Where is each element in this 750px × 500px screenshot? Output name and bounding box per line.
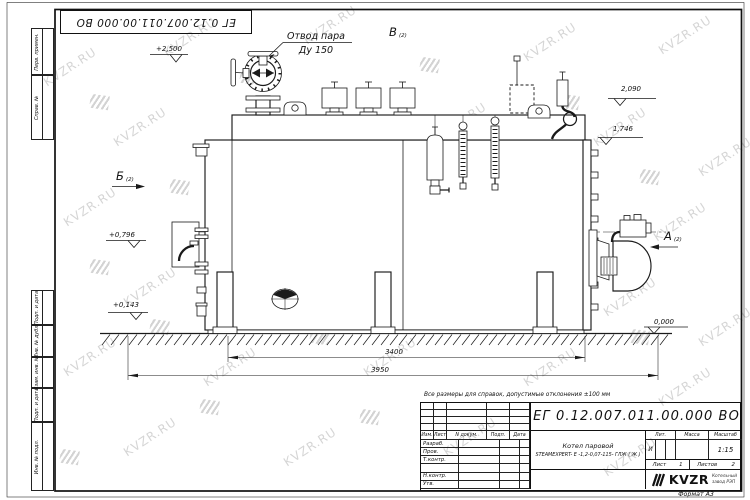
steam-callout-line2: Ду 150 (298, 45, 333, 56)
signature-rows: Разраб.Пров.Т.контр.Н.контр.Утв. (421, 440, 530, 489)
sheets-total: 2 (731, 462, 734, 468)
ground-line (100, 334, 672, 346)
sheets-label: Листов (697, 462, 717, 468)
svg-text:0,000: 0,000 (654, 318, 675, 326)
sheet-row: Лист 1 Листов 2 (646, 459, 742, 469)
level-2500: +2,500 (150, 45, 188, 62)
drawing-sheet: KVZR.RUKVZR.RUKVZR.RUKVZR.RUKVZR.RUKVZR.… (0, 0, 750, 500)
boiler-shell (205, 140, 587, 334)
level-0796: +0,796 (106, 231, 146, 248)
product-name: Котел паровой (563, 442, 614, 450)
margin-box-podp-data-2: Подп. и дата (31, 388, 54, 422)
margin-box-inv-podl: Инв. № подл. (31, 422, 54, 491)
margin-box-podp-data-1: Подп. и дата (31, 290, 54, 325)
svg-text:+2,500: +2,500 (156, 45, 182, 53)
title-block: ЕГ 0.12.007.011.00.000 ВО Изм.ЛистN доку… (420, 402, 741, 491)
kvzr-logo-icon (651, 473, 666, 487)
steam-callout-line1: Отвод пара (287, 31, 345, 42)
scale-value: 1:15 (709, 440, 742, 459)
steam-outlet-callout: Отвод пара Ду 150 (269, 31, 352, 58)
svg-text:+0,143: +0,143 (113, 301, 139, 309)
sheet-no: 1 (679, 462, 682, 468)
view-marker-left: Б (2) (112, 169, 145, 189)
steam-valve (231, 52, 282, 116)
level-0000: 0,000 (644, 318, 688, 334)
level-0143: +0,143 (108, 301, 148, 320)
revision-header: Изм.ЛистN докум.Подп.Дата (421, 431, 530, 440)
svg-text:+0,796: +0,796 (109, 231, 135, 239)
top-hatches (322, 82, 415, 115)
top-doc-stamp: ЕГ 0.12.007.011.00.000 ВО (60, 10, 252, 34)
brand-subtitle: Котельный завод РЭП (712, 474, 737, 484)
revision-grid (421, 403, 530, 431)
view-right-letter: А (663, 229, 672, 243)
view-top-letter: В (389, 25, 397, 39)
margin-box-sprav-no: Справ. № (31, 75, 54, 140)
product-name-cell: Котел паровой STEAMEXPERT- Е -1,2-0,07-1… (530, 431, 646, 469)
dim-3400: 3400 (228, 336, 585, 362)
svg-text:2,090: 2,090 (621, 85, 642, 93)
title-doc-number: ЕГ 0.12.007.011.00.000 ВО (530, 403, 742, 431)
brand-name: KVZR (669, 472, 709, 487)
revision-table: Изм.ЛистN докум.Подп.Дата Разраб.Пров.Т.… (421, 403, 530, 489)
view-right-sub: (2) (674, 237, 682, 243)
level-2090: 2,090 (608, 85, 656, 106)
top-doc-number: ЕГ 0.12.007.011.00.000 ВО (76, 16, 236, 28)
margin-box-vzam-inv: Взам. инв. № (31, 357, 54, 388)
dim-3400-label: 3400 (385, 348, 403, 356)
margin-box-perv-primen: Перв. примен. (31, 28, 54, 75)
mass-label: Масса (676, 431, 709, 440)
feedwater-unit (172, 144, 209, 316)
margin-box-inv-dubl: Инв. № дубл. (31, 325, 54, 357)
empty-cell (530, 469, 646, 489)
tolerance-note: Все размеры для справок, допустимые откл… (424, 392, 588, 398)
sheet-label: Лист (652, 462, 666, 468)
lit-label: Лит. (646, 431, 676, 440)
top-platform (232, 115, 585, 140)
format-label: Формат А3 (646, 491, 746, 498)
view-top-sub: (2) (399, 33, 407, 39)
burner-assembly (589, 215, 651, 292)
view-left-letter: Б (116, 169, 124, 183)
view-marker-top: В (2) (389, 25, 407, 39)
product-model: STEAMEXPERT- Е -1,2-0,07-115- ГЛЖ ( Ж ) (536, 452, 641, 458)
level-1746: 1,746 (598, 125, 643, 145)
dim-3950-label: 3950 (371, 366, 389, 374)
phantom-unit (510, 56, 534, 113)
scale-label: Масштаб (709, 431, 742, 440)
lit-mass-scale: Лит. Масса Масштаб И 1:15 (646, 431, 742, 459)
svg-text:1,746: 1,746 (613, 125, 634, 133)
company-cell: KVZR Котельный завод РЭП (646, 469, 742, 489)
view-left-sub: (2) (126, 177, 134, 183)
lit-value: И (646, 440, 656, 459)
